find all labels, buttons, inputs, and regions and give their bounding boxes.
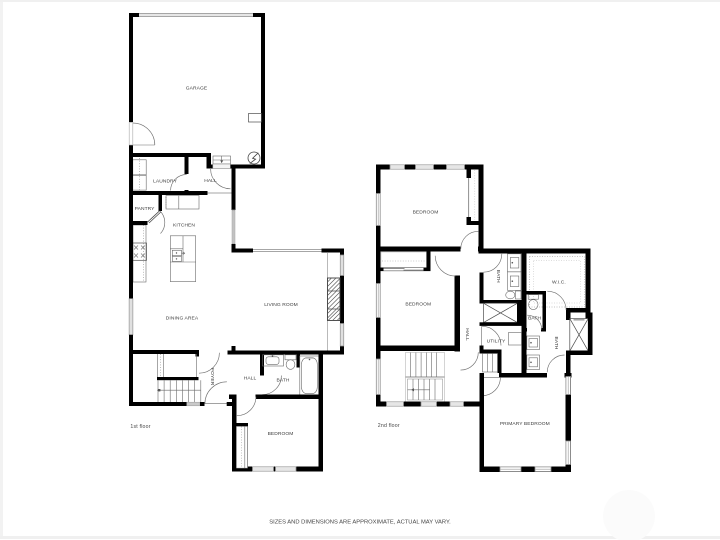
svg-text:W.I.C.: W.I.C.	[552, 280, 566, 286]
svg-text:HALL: HALL	[464, 328, 470, 341]
svg-text:HALL: HALL	[244, 376, 257, 382]
svg-text:DINING AREA: DINING AREA	[166, 315, 199, 321]
svg-text:BATH: BATH	[277, 378, 290, 384]
svg-text:PRIMARY BEDROOM: PRIMARY BEDROOM	[500, 421, 550, 427]
svg-text:PANTRY: PANTRY	[135, 206, 156, 212]
svg-text:FOYER: FOYER	[209, 368, 215, 386]
svg-text:BATH: BATH	[495, 270, 501, 283]
svg-text:LIVING ROOM: LIVING ROOM	[264, 302, 298, 308]
svg-text:GARAGE: GARAGE	[186, 86, 208, 92]
svg-text:BATH: BATH	[528, 315, 541, 321]
svg-text:1st floor: 1st floor	[130, 424, 150, 430]
svg-text:SIZES AND DIMENSIONS ARE APPRO: SIZES AND DIMENSIONS ARE APPROXIMATE, AC…	[269, 520, 451, 526]
svg-text:HALL: HALL	[204, 178, 217, 184]
svg-text:BEDROOM: BEDROOM	[413, 209, 439, 215]
svg-text:UTILITY: UTILITY	[487, 339, 506, 345]
svg-text:2nd floor: 2nd floor	[378, 423, 400, 429]
svg-text:KITCHEN: KITCHEN	[173, 222, 195, 228]
svg-text:BEDROOM: BEDROOM	[268, 431, 294, 437]
svg-text:BEDROOM: BEDROOM	[405, 302, 431, 308]
svg-text:LAUNDRY: LAUNDRY	[153, 179, 178, 185]
svg-text:BATH: BATH	[553, 337, 559, 350]
